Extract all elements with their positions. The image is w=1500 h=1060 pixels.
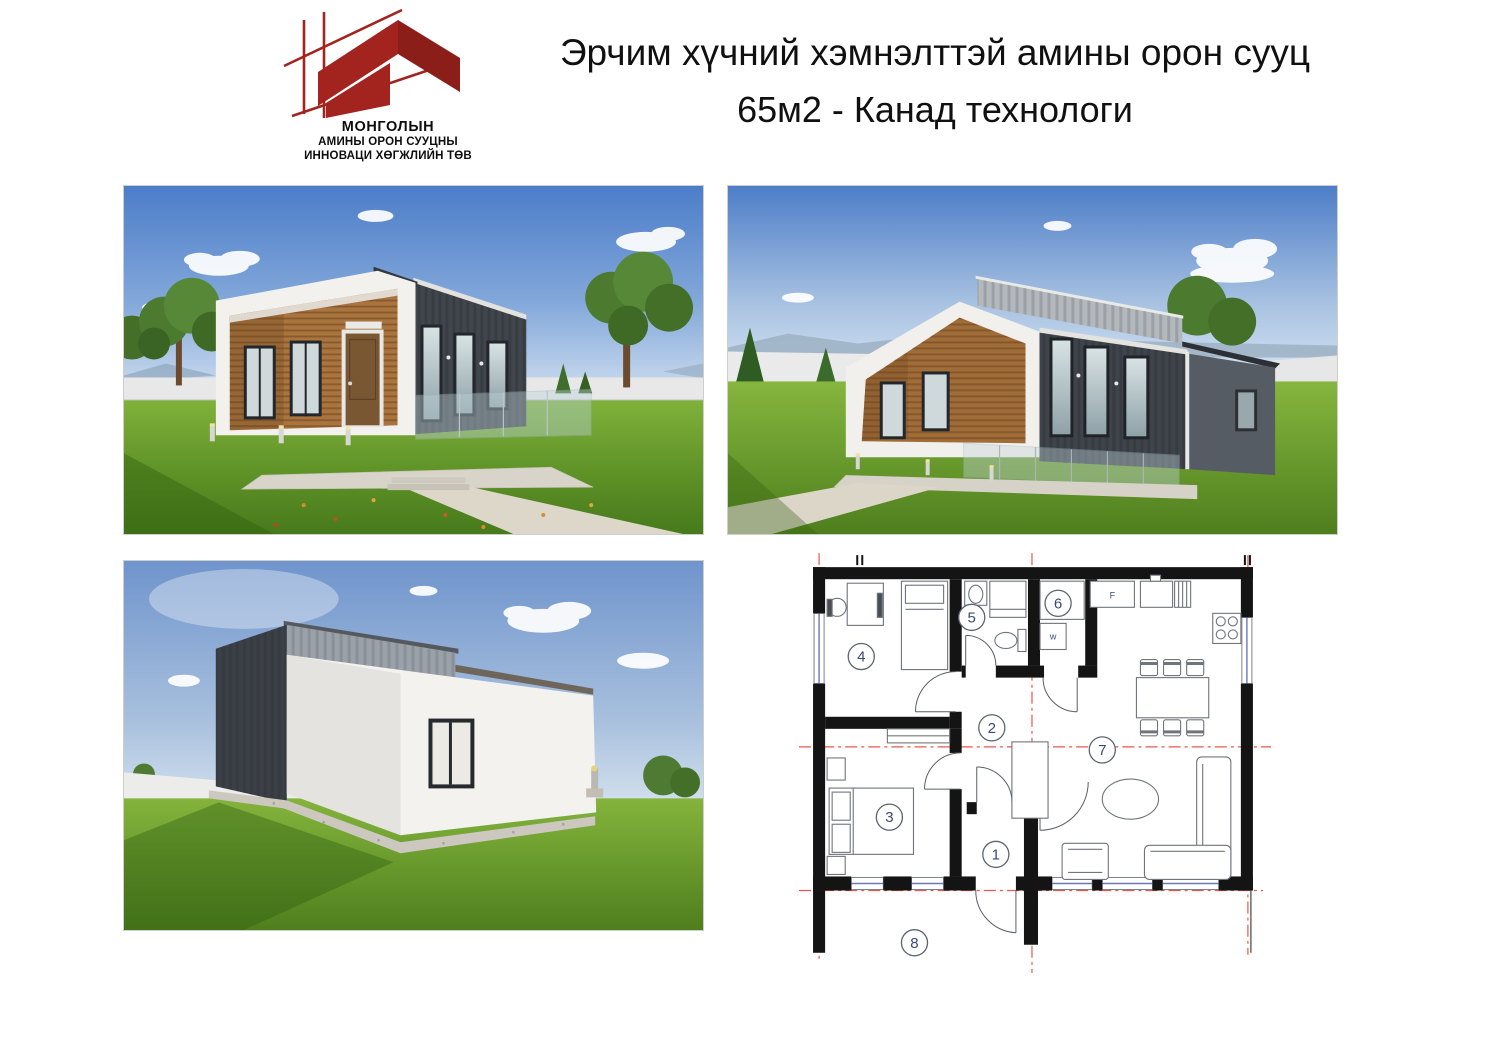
svg-text:2: 2: [988, 720, 996, 737]
room-label-5: 5: [959, 604, 985, 630]
room-label-3: 3: [876, 804, 902, 830]
room-label-4: 4: [848, 643, 874, 669]
room-label-6: 6: [1045, 590, 1071, 616]
room-label-2: 2: [979, 715, 1005, 741]
render-terrace-view-photo: [727, 185, 1338, 535]
render-front-view-image: [124, 186, 703, 534]
svg-text:6: 6: [1054, 595, 1062, 612]
logo-org-line2: АМИНЫ ОРОН СУУЦНЫ: [281, 136, 495, 150]
svg-text:8: 8: [910, 935, 918, 952]
svg-text:1: 1: [992, 846, 1000, 863]
render-rear-view-photo: [123, 560, 704, 931]
fridge-label: F: [1110, 590, 1116, 600]
render-rear-view-image: [124, 561, 703, 930]
page-subtitle: 65м2 - Канад технологи: [430, 82, 1440, 138]
room-label-1: 1: [983, 841, 1009, 867]
floor-plan-image: F w 1 2 3 4: [799, 553, 1271, 985]
svg-text:5: 5: [968, 609, 976, 626]
brochure-page: МОНГОЛЫН АМИНЫ ОРОН СУУЦНЫ ИННОВАЦИ ХӨГЖ…: [0, 0, 1500, 1060]
header: Эрчим хүчний хэмнэлттэй амины орон сууц …: [430, 24, 1440, 138]
floor-plan-drawing: F w 1 2 3 4: [799, 553, 1271, 985]
room-label-8: 8: [901, 930, 927, 956]
render-terrace-view-image: [728, 186, 1337, 534]
svg-text:3: 3: [885, 809, 893, 826]
svg-text:4: 4: [857, 649, 865, 666]
svg-text:7: 7: [1098, 742, 1106, 759]
logo-org-line3: ИННОВАЦИ ХӨГЖЛИЙН ТӨВ: [281, 150, 495, 164]
washer-label: w: [1049, 631, 1057, 641]
page-title: Эрчим хүчний хэмнэлттэй амины орон сууц: [430, 24, 1440, 82]
floor-plan-room-labels: 1 2 3 4 5: [848, 590, 1115, 956]
render-front-view-photo: [123, 185, 704, 535]
room-label-7: 7: [1089, 737, 1115, 763]
